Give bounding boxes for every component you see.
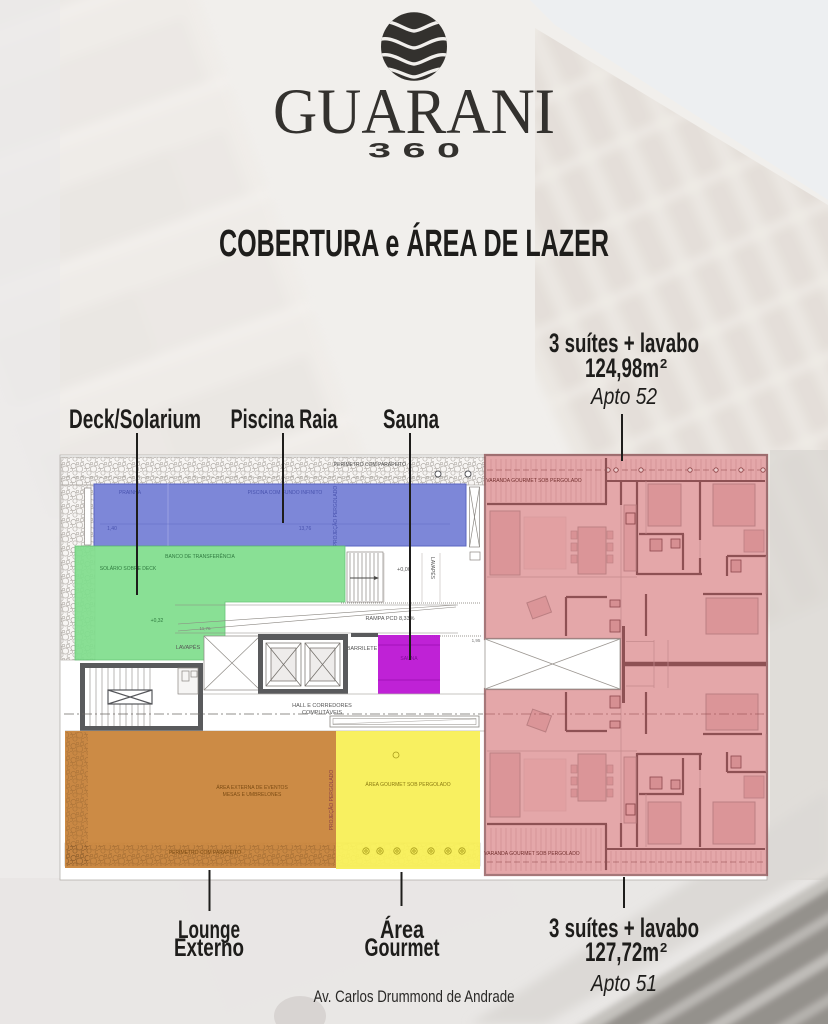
svg-text:2: 2 <box>660 940 667 955</box>
svg-text:BARRILETE: BARRILETE <box>347 646 378 652</box>
svg-text:PRAINHA: PRAINHA <box>119 490 142 496</box>
svg-text:Av. Carlos Drummond de Andrade: Av. Carlos Drummond de Andrade <box>314 987 515 1006</box>
svg-text:BANCO DE TRANSFERÊNCIA: BANCO DE TRANSFERÊNCIA <box>165 552 235 560</box>
svg-text:1,95: 1,95 <box>472 638 481 643</box>
svg-text:VARANDA GOURMET SOB PERGOLADO: VARANDA GOURMET SOB PERGOLADO <box>486 478 582 484</box>
svg-text:ÁREA GOURMET SOB PERGOLADO: ÁREA GOURMET SOB PERGOLADO <box>365 781 450 788</box>
svg-text:HALL E CORREDORES: HALL E CORREDORES <box>292 703 352 709</box>
svg-text:RAMPA PCD 8,33%: RAMPA PCD 8,33% <box>365 616 414 622</box>
svg-text:PERÍMETRO COM PARAPEITO: PERÍMETRO COM PARAPEITO <box>334 461 406 468</box>
svg-text:124,98m: 124,98m <box>585 353 659 383</box>
svg-text:Apto 51: Apto 51 <box>589 970 657 996</box>
svg-text:PROJEÇÃO PERGOLADO: PROJEÇÃO PERGOLADO <box>332 486 339 547</box>
svg-text:PERÍMETRO COM PARAPEITO: PERÍMETRO COM PARAPEITO <box>169 849 241 856</box>
svg-text:SOLÁRIO SOBRE DECK: SOLÁRIO SOBRE DECK <box>100 565 157 572</box>
svg-text:Apto 52: Apto 52 <box>589 383 657 409</box>
svg-text:2: 2 <box>660 356 667 371</box>
svg-text:127,72m: 127,72m <box>585 937 659 967</box>
svg-text:Externo: Externo <box>174 934 244 962</box>
svg-text:Piscina Raia: Piscina Raia <box>231 404 339 434</box>
svg-text:13,76: 13,76 <box>299 526 312 532</box>
svg-text:3 6 0: 3 6 0 <box>368 140 460 163</box>
svg-text:1,40: 1,40 <box>107 526 117 532</box>
svg-text:+0,00: +0,00 <box>397 567 411 573</box>
svg-text:PISCINA COM FUNDO INFINITO: PISCINA COM FUNDO INFINITO <box>248 490 323 496</box>
svg-text:ÁREA EXTERNA DE EVENTOS: ÁREA EXTERNA DE EVENTOS <box>216 784 288 791</box>
svg-text:MESAS E UMBRELONES: MESAS E UMBRELONES <box>223 792 282 798</box>
svg-text:VARANDA GOURMET SOB PERGOLADO: VARANDA GOURMET SOB PERGOLADO <box>484 851 580 857</box>
svg-text:Deck/Solarium: Deck/Solarium <box>69 404 201 434</box>
svg-text:11,76: 11,76 <box>200 626 211 631</box>
svg-text:LAVAPÉS: LAVAPÉS <box>176 644 201 651</box>
svg-text:Sauna: Sauna <box>383 404 440 434</box>
svg-text:COMPUTÁVEIS: COMPUTÁVEIS <box>302 709 342 716</box>
svg-text:LAVAPÉS: LAVAPÉS <box>429 557 436 580</box>
svg-text:COBERTURA e ÁREA DE LAZER: COBERTURA e ÁREA DE LAZER <box>219 221 609 265</box>
svg-text:+0,32: +0,32 <box>151 618 164 624</box>
svg-text:PROJEÇÃO PERGOLADO: PROJEÇÃO PERGOLADO <box>328 770 335 831</box>
svg-text:Gourmet: Gourmet <box>365 934 440 962</box>
svg-text:GUARANI: GUARANI <box>273 76 555 148</box>
